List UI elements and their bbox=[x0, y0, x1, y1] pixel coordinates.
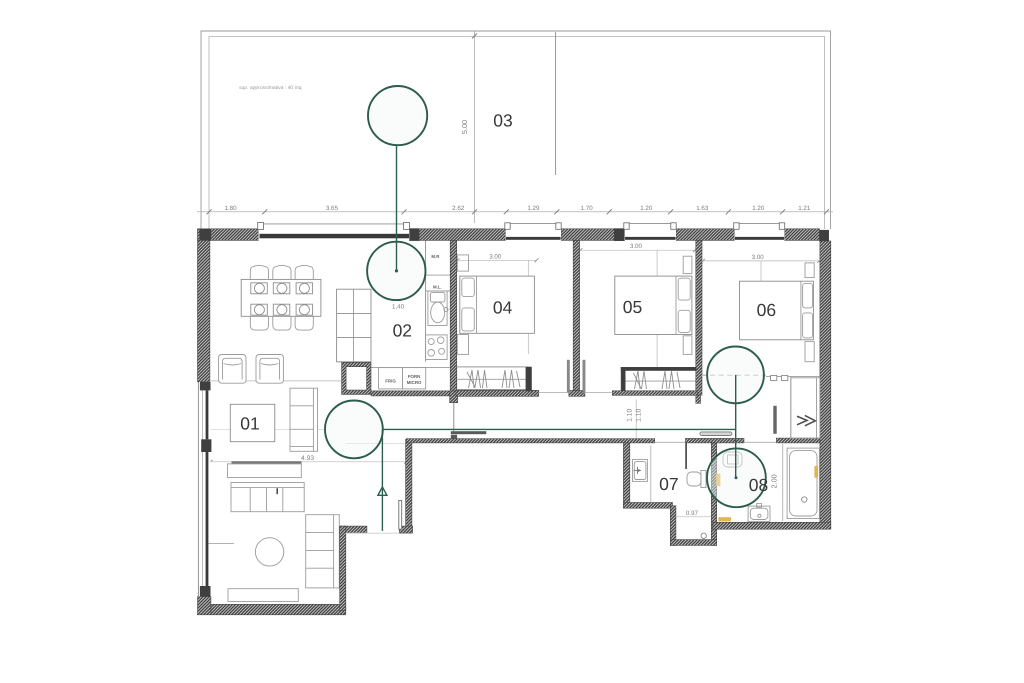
svg-text:05: 05 bbox=[623, 297, 642, 317]
svg-text:01: 01 bbox=[240, 414, 259, 434]
svg-text:3.65: 3.65 bbox=[326, 205, 339, 212]
svg-text:MICRO: MICRO bbox=[407, 380, 422, 385]
svg-text:1,40: 1,40 bbox=[392, 303, 405, 310]
svg-text:06: 06 bbox=[757, 300, 776, 320]
svg-text:sup. approssimativa : 40 mq: sup. approssimativa : 40 mq bbox=[239, 85, 302, 91]
svg-text:1.10: 1.10 bbox=[627, 408, 634, 421]
svg-text:1.10: 1.10 bbox=[636, 408, 643, 421]
svg-text:08: 08 bbox=[749, 475, 768, 495]
svg-text:3.00: 3.00 bbox=[752, 254, 765, 261]
svg-text:5.00: 5.00 bbox=[460, 120, 469, 134]
svg-text:FORN: FORN bbox=[408, 374, 420, 379]
svg-text:1.21: 1.21 bbox=[798, 205, 811, 212]
svg-text:2.62: 2.62 bbox=[452, 205, 465, 212]
svg-text:1.63: 1.63 bbox=[696, 205, 709, 212]
svg-text:1.20: 1.20 bbox=[752, 205, 765, 212]
svg-text:FRIG: FRIG bbox=[385, 379, 396, 384]
svg-text:04: 04 bbox=[493, 298, 513, 318]
svg-text:1.80: 1.80 bbox=[224, 205, 237, 212]
svg-text:1.70: 1.70 bbox=[581, 205, 594, 212]
svg-text:3.00: 3.00 bbox=[489, 253, 502, 260]
svg-text:1.20: 1.20 bbox=[640, 205, 653, 212]
svg-text:0.97: 0.97 bbox=[686, 510, 699, 517]
svg-text:07: 07 bbox=[659, 474, 678, 494]
svg-text:2.00: 2.00 bbox=[770, 474, 779, 488]
svg-text:4.93: 4.93 bbox=[301, 455, 314, 462]
svg-text:M.R: M.R bbox=[431, 254, 440, 259]
svg-text:02: 02 bbox=[393, 321, 412, 341]
svg-text:3.00: 3.00 bbox=[630, 243, 643, 250]
svg-text:03: 03 bbox=[493, 110, 512, 130]
svg-text:1.29: 1.29 bbox=[527, 205, 540, 212]
svg-text:M.L.: M.L. bbox=[433, 285, 442, 290]
